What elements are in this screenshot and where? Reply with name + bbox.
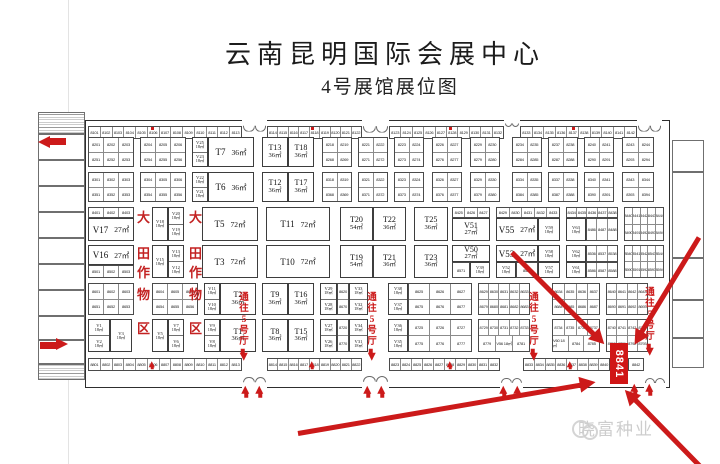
v-booth: V5818㎡ [539,246,559,261]
booth-cell: 8823 [390,359,401,370]
booth-cell: 8255 [156,153,171,167]
door-up-arrow [244,392,248,398]
booth-grid-block: 8218821982688269 [322,137,352,167]
booth-grid-row: 850185028503 [89,266,133,277]
booth-cell: 8387 [549,188,564,202]
arrow-to-8841-lower-left [298,382,583,436]
booth-grid-row: 83218322 [359,173,387,188]
booth-cell: 8274 [410,153,424,167]
booth-cell: 8804 [124,359,136,370]
booth-grid-block: 8221822282718272 [358,137,388,167]
booth-hcol: V2918㎡V2818㎡ [320,283,337,315]
v-booth: V2218㎡ [193,173,207,188]
booth-cell: 8353 [119,188,133,202]
door-gap [637,119,662,122]
booth-cell: 8651 [89,300,104,315]
booth-cell: 8354 [141,188,156,202]
booth-cell: 8388 [564,188,578,202]
booth-cell: 8244 [639,138,654,152]
booth-hcol: V2718㎡V2618㎡ [320,319,337,352]
booth-grid-block: 830183028303835183528353 [88,172,134,202]
t-booth: T836㎡ [262,319,288,352]
t-booth: T2536㎡ [414,207,448,241]
booth-grid-block: 8226822782768277 [432,137,462,167]
t-booth: T1736㎡ [288,172,314,202]
booth-area: 72㎡ [301,256,316,267]
booth-cell: 8629 [479,284,489,299]
booth-hgroup: V3818㎡V3718㎡862586268627867586768677 [388,283,472,315]
booth-vgroup: V5327㎡V5818㎡V5218㎡8581V5718㎡ [496,245,560,278]
booth-grid-row: 8690869186928693 [607,300,647,315]
v-booth-stack: V1118㎡V1018㎡ [204,283,220,315]
booth-id: T5 [215,219,225,229]
booth-cell: 8537 [597,246,607,261]
booth-cell: 8251 [89,153,104,167]
booth-cell: 8436 [587,208,597,217]
booth-grid-row: 84908491849284938494 [625,225,663,241]
arrowhead-icon [56,338,68,350]
booth-cell: 8592 [641,262,649,277]
booth-hcol: 86208670 [337,283,349,315]
booth-grid-block: 850185028503 [88,265,134,278]
t-booth: T1954㎡ [340,245,373,278]
booth-vgroup: V5027㎡8571V3918㎡ [452,245,490,278]
booth-cell: 8740 [607,320,617,335]
booth-grid-block: 820182028203825182528253 [88,137,134,167]
crop-zone-char: 田 [137,247,150,260]
crop-zone-char: 作 [189,266,202,279]
crop-zone-char: 田 [189,247,202,260]
v-booth: V618㎡ [169,336,183,351]
door-up-arrow [633,390,637,396]
booth-vrow: V5127㎡ [452,218,490,241]
booth-grid-block: 8321832283718372 [358,172,388,202]
booth-cell: 8692 [628,300,638,315]
booth-cell: 8632 [510,284,520,299]
booth-id: V16 [93,250,109,260]
arrowhead-icon [579,373,597,391]
booth-grid-block: 872987308731873287338779V56 18㎡8781 [478,319,530,352]
booth-grid-row: 825182528253 [89,153,133,167]
booth-cell: 8676 [430,300,451,315]
row-mark-arrow [311,365,314,369]
annex-room [672,172,704,258]
booth-cell: 8544 [656,246,663,261]
booth-grid-row: 858685878588 [587,263,617,277]
t-booth: T372㎡ [202,245,258,278]
t-booth: T1236㎡ [262,172,288,202]
booth-hcol: V5527㎡ [496,218,538,241]
booth-cell: 8654 [153,300,168,315]
door-up-arrow [366,392,370,398]
booth-cell: 8444 [656,208,663,224]
booth-hgroup: V6118㎡858685878588 [566,262,618,278]
t-booth: V5127㎡ [452,218,490,241]
door-up-arrow [502,392,506,398]
booth-cell: 8503 [119,266,133,277]
booth-cell: 8824 [401,359,412,370]
booth-grid-row: 86798680868186828683 [479,300,529,315]
booth-cell: 8371 [359,188,374,202]
t-booth: T736㎡ [208,137,254,167]
booth-grid-block: 830483058306835483558356 [140,172,186,202]
annex-room [38,264,85,290]
v-booth: V3518㎡ [389,336,407,351]
v-booth: V3918㎡ [471,263,489,277]
booth-grid-row: 835183528353 [89,188,133,202]
booth-cell: 8391 [600,188,614,202]
booth-cell: 8840 [599,359,609,370]
booth-grid-block: 8571 [452,262,470,278]
t-booth-pair: T1954㎡T2136㎡ [340,245,406,278]
booth-cell: 8641 [617,284,627,299]
booth-cell: 8802 [101,359,113,370]
booth-vgroup: 842584268427V5127㎡ [452,207,490,241]
booth-grid-block: 853685378538 [586,245,618,262]
booth-cell: 8227 [448,138,462,152]
booth-grid-row: 85408541854285438544 [625,246,663,262]
booth-cell: 8380 [486,188,500,202]
door-gap [362,119,389,122]
booth-grid-row: 840184028403 [89,208,133,217]
v-booth: V3618㎡ [389,320,407,336]
v-booth: V1218㎡ [169,262,183,277]
booth-grid-block: 8334833583848385 [512,172,542,202]
arrowhead-icon [309,361,315,367]
arrowhead-icon [514,386,522,394]
booth-hcol: V2518㎡V2318㎡ [192,137,208,167]
booth-cell: 8206 [171,138,185,152]
booth-cell: 8338 [564,173,578,187]
booth-cell: 8238 [564,138,578,152]
v-booth-stack: V6118㎡ [566,262,586,278]
booth-cell: 8594 [656,262,663,277]
booth-area: 72㎡ [231,219,246,230]
booth-cell: 8810 [195,359,207,370]
booth-hgroup: V3618㎡V3518㎡872587268727877587768777 [388,319,472,352]
booth-cell: 8284 [513,153,528,167]
booth-cell: 8437 [598,208,608,217]
booth-hgroup: V2918㎡V2818㎡86208670V3318㎡V3218㎡ [320,283,368,315]
booth-cell: 8687 [588,300,599,315]
booth-cell: 8334 [513,173,528,187]
booth-cell: 8327 [448,173,462,187]
booth-cell: 8369 [338,188,352,202]
v-booth: V118㎡ [89,320,109,336]
booth-cell: 8677 [451,300,471,315]
booth-cell: 8429 [497,208,510,217]
t-booth: T1336㎡ [262,137,288,167]
v-booth-stack: V3918㎡ [470,262,490,278]
booth-cell: 8593 [648,262,656,277]
v-booth: V1818㎡ [153,208,167,240]
booth-grid-row: 83938394 [623,188,653,202]
booth-grid-block: 858685878588 [586,262,618,278]
booth-cell: 8652 [104,300,119,315]
t-booth: T2236㎡ [373,207,406,241]
booth-grid-row: 83438344 [623,173,653,188]
booth-grid-block: 842584268427 [452,207,490,218]
booth-cell: 8221 [359,138,374,152]
row-mark-arrow [151,365,154,369]
booth-cell: 8827 [434,359,445,370]
booth-cell: 8682 [510,300,520,315]
booth-grid-row: 825482558256 [141,153,185,167]
row-red-mark [151,127,154,130]
booth-cell: 8254 [141,153,156,167]
booth-hcol: 872587268727877587768777 [408,319,472,352]
booth-cell: 8273 [395,153,410,167]
booth-grid-block: 8540854185428543854485908591859285938594 [624,245,664,278]
arrowhead-icon [567,361,573,367]
booth-grid-block: 8229823082798280 [470,137,500,167]
booth-cell: 8272 [374,153,388,167]
booth-cell: 8303 [119,173,133,187]
booth-cell: 8287 [549,153,564,167]
booth-grid-row: 82298230 [471,138,499,153]
booth-grid-row: 865186528653 [89,300,133,315]
booth-hcol: V918㎡V818㎡ [204,319,220,352]
booth-cell: 8636 [577,284,589,299]
booth-grid-row: 8620 [338,284,348,300]
booth-cell: 8443 [648,208,656,224]
booth-cell: 8655 [168,300,183,315]
v-booth: V3818㎡ [389,284,407,300]
hall5-down-arrow [241,349,245,355]
booth-cell: 8830 [467,359,478,370]
t-booth: V1627㎡ [88,245,134,265]
t-booth: T572㎡ [202,207,258,241]
booth-cell: 8223 [395,138,410,152]
booth-id: V55 [499,225,515,235]
booth-hcol: V6218㎡ [566,245,586,262]
booth-id: T11 [280,219,294,229]
booth-cell: 8344 [639,173,654,187]
t-booth: T1072㎡ [266,245,330,278]
booth-cell: 8356 [171,188,185,202]
v-booth: V218㎡ [89,336,109,351]
booth-cell: 8340 [585,173,600,187]
arrowhead-icon [149,361,155,367]
booth-grid-row: 872587268727 [409,320,471,336]
booth-grid-block: 84348435843684378438 [566,207,618,218]
booth-grid-row: 83878388 [549,188,577,202]
booth-hcol: 8571 [452,262,470,278]
booth-grid-block: 8337833883878388 [548,172,578,202]
booth-cell: 8337 [549,173,564,187]
booth-cell: 8675 [409,300,430,315]
booth-cell: 8376 [433,188,448,202]
booth-cell: 8805 [136,359,148,370]
booth-id: T10 [280,257,295,267]
booth-cell: 8601 [89,284,104,299]
crop-zone-char: 物 [189,288,202,301]
booth-hcol: V6118㎡ [566,262,586,278]
booth-cell: 8821 [341,359,351,370]
booth-cell: 8402 [104,208,119,217]
booth-cell: 8224 [410,138,424,152]
row-red-mark [572,127,575,130]
booth-cell: 8256 [171,153,185,167]
booth-area: 27㎡ [520,248,535,259]
booth-cell: 8605 [168,284,183,299]
booth-cell: 8734 [553,320,565,335]
t-booth-pair: T1336㎡T1836㎡ [262,137,314,167]
booth-cell: 8777 [451,336,471,351]
booth-cell: 8324 [410,173,424,187]
v-booth-stack: V5718㎡ [538,262,560,278]
v-booth: V6218㎡ [567,246,585,261]
booth-cell: 8801 [89,359,101,370]
v-booth: V1118㎡ [205,284,219,300]
booth-grid-row: 82268227 [433,138,461,153]
booth-hgroup: V6218㎡853685378538 [566,245,618,262]
booth-grid-row: 842584268427 [453,208,489,217]
booth-hcol: V3918㎡ [470,262,490,278]
bottom-booth-row: 8801880288038804880588068807880888098810… [88,358,242,371]
booth-cell: 8542 [641,246,649,261]
booth-hcol: V5218㎡ [496,262,516,278]
booth-grid-row: 830483058306 [141,173,185,188]
booth-cell: 8203 [119,138,133,152]
booth-hcol: T736㎡ [208,137,254,167]
booth-hgroup: V5327㎡V5818㎡ [496,245,560,262]
annex-room [672,300,704,338]
booth-grid-row: 853685378538 [587,246,617,261]
booth-vgroup: 84298430843184328433V5527㎡V5918㎡ [496,207,560,241]
booth-grid-row: 82768277 [433,153,461,167]
booth-cell: 8277 [448,153,462,167]
hall5-down-arrow [531,349,535,355]
arrowhead-icon [500,386,508,394]
booth-hcol: V5818㎡ [538,245,560,262]
booth-cell: 8538 [608,246,617,261]
v-booth-stack: V1318㎡V1218㎡ [168,245,184,278]
booth-grid-row: 83238324 [395,173,423,188]
v-booth-stack: V5818㎡ [538,245,560,262]
to-hall5-label: 通往5号厅 [237,293,251,348]
booth-cell: 8814 [268,359,278,370]
booth-area: 27㎡ [520,224,535,235]
booth-cell: 8237 [549,138,564,152]
booth-grid-row: 867586768677 [409,300,471,315]
v-booth: V1018㎡ [205,300,219,315]
exit-arrow [48,138,66,145]
v-booth: V5718㎡ [539,263,559,277]
booth-area: 27㎡ [465,254,478,261]
booth-grid-row: 8670 [338,300,348,315]
hall5-down-arrow [647,344,651,350]
v-booth: V2918㎡ [321,284,336,300]
v-booth-stack: V918㎡V818㎡ [204,319,220,352]
booth-cell: 8494 [656,225,663,241]
booth-grid-row: 877587768777 [409,336,471,351]
booth-grid-block: 8318831983688369 [322,172,352,202]
booth-cell: 8640 [607,284,617,299]
v-booth: V2118㎡ [193,188,207,202]
booth-cell: 8230 [486,138,500,152]
booth-cell: 8385 [528,188,542,202]
booth-grid-block: 87208770 [337,319,349,352]
booth-cell: 8543 [648,246,656,261]
v-booth: V3718㎡ [389,300,407,315]
booth-cell: 8540 [625,246,633,261]
booth-cell: 8653 [119,300,133,315]
annex-room [38,290,85,316]
booth-grid-row: 83298330 [471,173,499,188]
booth-grid-row: 8571 [453,263,469,277]
hall5-down-arrow [369,349,373,355]
t-booth: T936㎡ [262,283,288,315]
annex-room [38,238,85,264]
booth-hcol: V318㎡ [110,319,132,352]
v-booth: V918㎡ [205,320,219,336]
booth-grid-block: 86208670 [337,283,349,315]
v-booth: V718㎡ [169,320,183,336]
booth-cell: 8433 [547,208,559,217]
t-booth: V5027㎡ [452,245,490,262]
t-booth-pair: T1236㎡T1736㎡ [262,172,314,202]
booth-grid-row: 82378238 [549,138,577,153]
floor-plan-page: 云南昆明国际会展中心 4号展馆展位图 出口 入口 晓富种业 8101810281… [0,0,720,464]
booth-cell: 8285 [528,153,542,167]
booth-grid-block: 8326832783768377 [432,172,462,202]
arrowhead-icon [447,361,453,367]
booth-cell: 8393 [623,188,639,202]
booth-cell: 8276 [433,153,448,167]
page-subtitle: 4号展馆展位图 [150,72,630,99]
t-booth: V1727㎡ [88,218,134,241]
booth-hcol: 87208770 [337,319,349,352]
booth-cell: 8323 [395,173,410,187]
booth-vrow: V6318㎡848684878488 [566,218,618,241]
booth-cell: 8815 [278,359,288,370]
row-mark-arrow [449,365,452,369]
stairs [38,112,85,134]
booth-grid-row: 84298430843184328433 [497,208,559,217]
v-booth-stack: V3818㎡V3718㎡ [388,283,408,315]
booth-grid-row: 82438244 [623,138,653,153]
booth-cell: 8218 [323,138,338,152]
booth-cell: 8293 [623,153,639,167]
door-gap [242,119,267,122]
booth-cell: 8253 [119,153,133,167]
booth-hgroup: V118㎡V218㎡V318㎡ [88,319,132,352]
booth-vrow: 850185028503 [88,265,134,278]
booth-grid-row: 83908391 [585,188,613,202]
booth-cell: 8226 [433,138,448,152]
booth-vrow: 840184028403 [88,207,134,218]
arrowhead-icon [239,353,247,361]
booth-cell: 8820 [331,359,341,370]
v-booth: V2818㎡ [321,300,336,315]
booth-cell: 8492 [641,225,649,241]
booth-grid-row: 82938294 [623,153,653,167]
booth-cell: 8729 [479,320,489,335]
booth-cell: 8279 [471,153,486,167]
booth-cell: 8435 [577,208,587,217]
booth-cell: 8691 [617,300,627,315]
to-hall5-label: 通往5号厅 [365,293,379,348]
booth-cell: 8541 [633,246,641,261]
booth-hgroup: V2218㎡V2118㎡T636㎡ [192,172,254,202]
booth-cell: 8343 [623,173,639,187]
booth-grid-row: 8720 [338,320,348,336]
booth-cell: 8379 [471,188,486,202]
booth-grid-row: 830183028303 [89,173,133,188]
v-booth: V5218㎡ [497,263,515,277]
stairs [38,364,85,380]
